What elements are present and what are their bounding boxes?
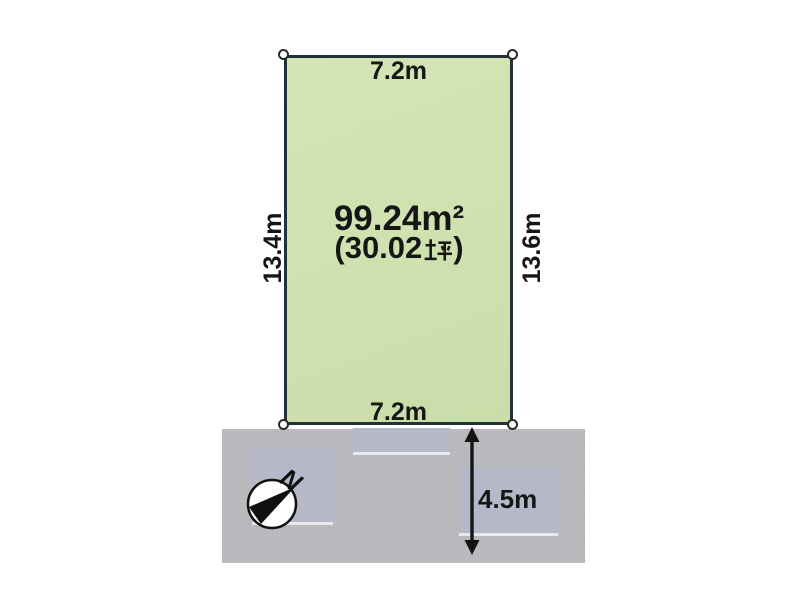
area-tsubo: (30.02 ) [264, 232, 534, 265]
north-arrow-icon: N [238, 458, 318, 530]
dimension-top: 7.2m [284, 58, 513, 84]
road-width-label: 4.5m [478, 486, 537, 513]
area-tsubo-prefix: (30.02 [334, 232, 422, 265]
building-footprint-middle [353, 428, 450, 455]
land-plot-diagram: 7.2m 7.2m 13.4m 13.6m 99.24m² (30.02 ) 4… [0, 0, 800, 600]
dimension-bottom: 7.2m [284, 399, 513, 425]
area-tsubo-suffix: ) [453, 232, 463, 265]
tsubo-character-icon [423, 235, 452, 264]
